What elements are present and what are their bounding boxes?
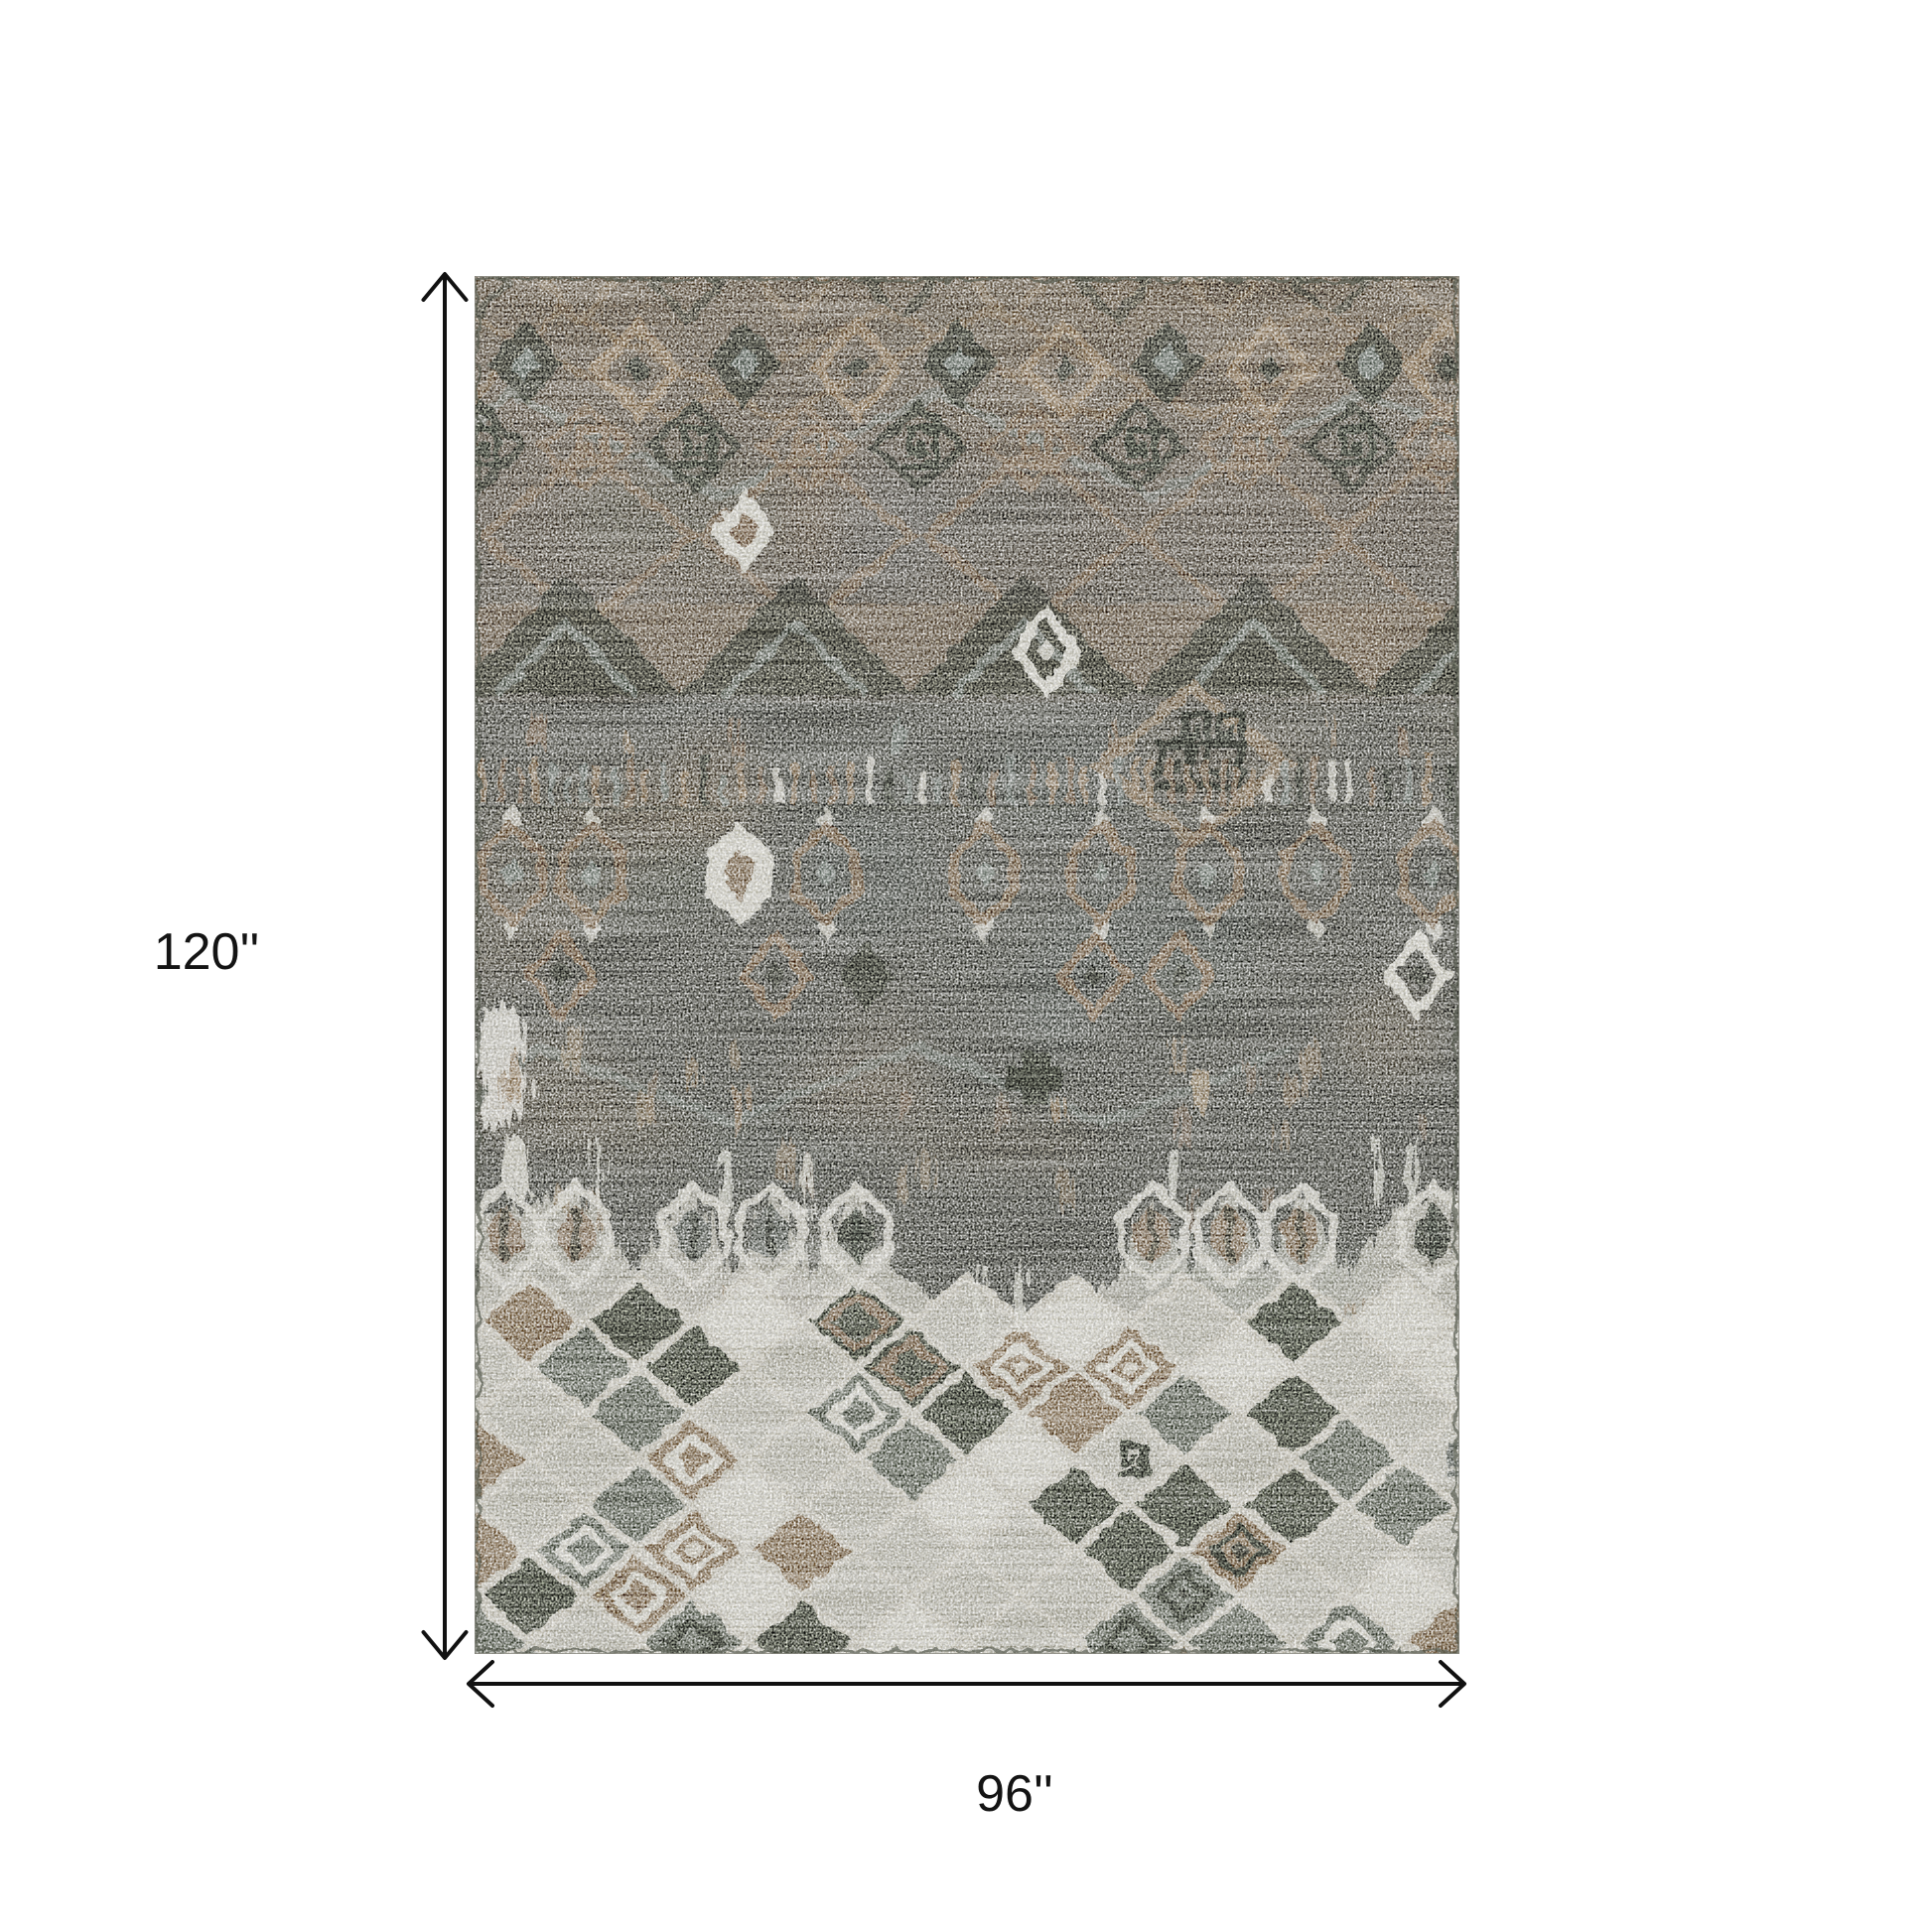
svg-text:120'': 120'' <box>154 923 260 981</box>
svg-text:96'': 96'' <box>976 1765 1053 1823</box>
